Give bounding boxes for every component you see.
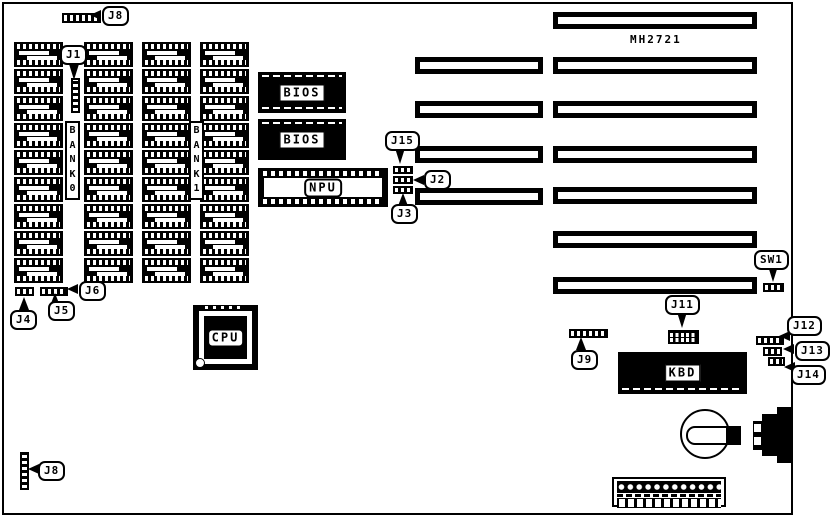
- battery-terminal: [726, 426, 741, 445]
- power-connector-sockets: [617, 498, 721, 508]
- memory-socket: [142, 150, 191, 175]
- memory-socket: [14, 150, 63, 175]
- memory-socket: [142, 96, 191, 121]
- npu-pins-bottom: [263, 199, 383, 204]
- j2-label: J2: [424, 170, 451, 190]
- memory-socket: [14, 96, 63, 121]
- memory-socket: [84, 258, 133, 283]
- kbd-label: KBD: [665, 365, 701, 382]
- j4-connector: [15, 287, 34, 296]
- j4-label: J4: [10, 310, 37, 330]
- cpu-pin1-dot: [195, 358, 205, 368]
- npu-label: NPU: [304, 178, 342, 197]
- j8-top-pointer: [90, 10, 101, 20]
- expansion-slot: [553, 231, 757, 248]
- power-connector-contacts: [617, 494, 721, 497]
- j9-pointer: [576, 337, 586, 350]
- memory-socket: [200, 96, 249, 121]
- expansion-slot: [415, 57, 543, 74]
- memory-socket: [200, 69, 249, 94]
- memory-socket: [142, 42, 191, 67]
- j4-pointer: [19, 297, 29, 310]
- j6-pointer: [67, 284, 78, 294]
- memory-socket: [142, 204, 191, 229]
- memory-socket: [200, 177, 249, 202]
- j1-pointer: [69, 64, 79, 80]
- j6-label: J6: [79, 281, 106, 301]
- expansion-slot: [553, 146, 757, 163]
- expansion-slot: [553, 57, 757, 74]
- part-number: MH2721: [630, 33, 682, 46]
- memory-socket: [14, 177, 63, 202]
- keyboard-din-notch-1: [754, 424, 761, 432]
- memory-socket: [200, 42, 249, 67]
- j11-connector: [668, 330, 699, 344]
- bios-chip-top: BIOS: [258, 72, 346, 113]
- expansion-slot: [415, 188, 543, 205]
- memory-socket: [142, 177, 191, 202]
- memory-socket: [84, 42, 133, 67]
- j2-connector: [393, 176, 413, 184]
- j8-top-label: J8: [102, 6, 129, 26]
- memory-socket: [142, 69, 191, 94]
- memory-socket: [142, 123, 191, 148]
- j9-connector: [569, 329, 608, 338]
- bios-bottom-label: BIOS: [280, 131, 325, 148]
- sw1-label: SW1: [754, 250, 789, 270]
- expansion-slot: [553, 187, 757, 204]
- j9-label: J9: [571, 350, 598, 370]
- j13-pointer: [783, 344, 794, 354]
- memory-socket: [200, 231, 249, 256]
- bios-top-label: BIOS: [280, 84, 325, 101]
- keyboard-din-connector-body: [777, 407, 793, 463]
- cpu-label: CPU: [207, 328, 245, 347]
- expansion-slot: [553, 277, 757, 294]
- keyboard-din-notch-2: [754, 437, 761, 445]
- j11-label: J11: [665, 295, 700, 315]
- memory-socket: [200, 123, 249, 148]
- memory-socket: [200, 150, 249, 175]
- j15-connector: [393, 166, 413, 174]
- j1-connector: [71, 78, 80, 113]
- memory-socket: [200, 204, 249, 229]
- memory-socket: [84, 177, 133, 202]
- j15-label: J15: [385, 131, 420, 151]
- memory-socket: [142, 258, 191, 283]
- memory-socket: [84, 150, 133, 175]
- j3-label: J3: [391, 204, 418, 224]
- memory-socket: [14, 123, 63, 148]
- cpu-pins-top: [205, 306, 245, 309]
- expansion-slot: [553, 12, 757, 29]
- j2-pointer: [413, 175, 424, 185]
- j14-label: J14: [791, 365, 826, 385]
- j13-connector: [763, 347, 782, 356]
- bank1-label: BANK1: [189, 121, 204, 200]
- j8-bottom-label: J8: [38, 461, 65, 481]
- cpu-socket: CPU: [193, 305, 258, 370]
- memory-socket: [14, 69, 63, 94]
- memory-socket: [84, 123, 133, 148]
- memory-socket: [14, 231, 63, 256]
- memory-socket: [200, 258, 249, 283]
- j12-label: J12: [787, 316, 822, 336]
- memory-socket: [84, 231, 133, 256]
- expansion-slot: [415, 101, 543, 118]
- npu-pins-top: [263, 171, 383, 176]
- npu-socket: NPU: [258, 168, 388, 207]
- memory-socket: [14, 258, 63, 283]
- expansion-slot: [415, 146, 543, 163]
- j13-label: J13: [795, 341, 830, 361]
- motherboard-diagram: MH2721 BANK0 BANK1 J8 J1 J4 J5 J6 BIOS B…: [0, 0, 836, 520]
- j5-label: J5: [48, 301, 75, 321]
- bank0-label: BANK0: [65, 121, 80, 200]
- memory-socket: [84, 204, 133, 229]
- sw1-switch: [763, 283, 784, 292]
- memory-socket: [14, 204, 63, 229]
- memory-socket: [84, 96, 133, 121]
- memory-socket: [142, 231, 191, 256]
- memory-socket: [84, 69, 133, 94]
- power-connector: [612, 477, 726, 507]
- kbd-chip: KBD: [618, 352, 747, 394]
- bios-chip-bottom: BIOS: [258, 119, 346, 160]
- memory-socket: [14, 42, 63, 67]
- battery-body: [686, 426, 730, 445]
- expansion-slot: [553, 101, 757, 118]
- j14-connector: [768, 357, 785, 366]
- j1-label: J1: [60, 45, 87, 65]
- power-connector-pins: [617, 481, 721, 493]
